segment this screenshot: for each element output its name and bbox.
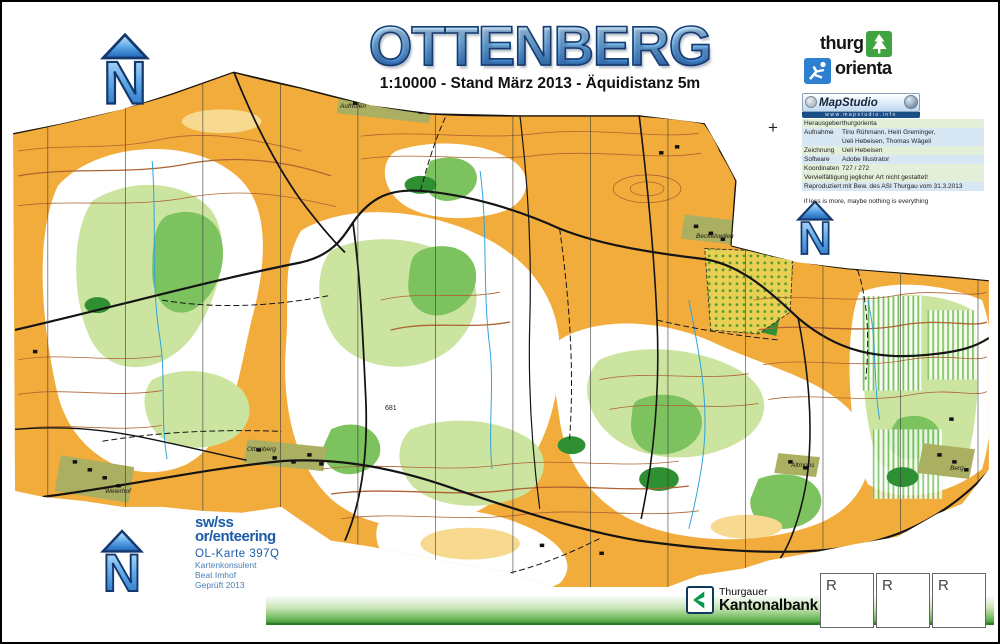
thurgorienta-word2: orienta	[835, 58, 892, 79]
north-letter: N	[103, 48, 147, 106]
imprint-row-label	[804, 137, 842, 146]
imprint-row-label: Aufnahme	[804, 128, 842, 137]
page-subtitle: 1:10000 - Stand März 2013 - Äquidistanz …	[320, 75, 760, 93]
mapstudio-logo: MapStudio www.mapstudio.info	[802, 93, 920, 118]
imprint-note: Reproduziert mit Bew. des ASI Thurgau vo…	[802, 182, 984, 191]
globe-icon	[904, 95, 918, 109]
gear-icon	[805, 96, 817, 108]
imprint-row-value: Ueli Hebeisen	[842, 146, 982, 155]
north-arrow-icon: N	[794, 198, 836, 258]
imprint-row: Herausgeber thurgorienta	[802, 119, 984, 128]
thurgorienta-word1: thurg	[820, 33, 863, 54]
map-reference: OL-Karte 397Q	[195, 548, 279, 560]
imprint-note: Vervielfältigung jeglicher Art nicht ges…	[802, 173, 984, 182]
imprint-row: Ueli Hebeisen, Thomas Wägeli	[802, 137, 984, 146]
imprint-row-label: Zeichnung	[804, 146, 842, 155]
stamp-box: R	[876, 573, 930, 628]
stamp-letter: R	[938, 577, 949, 594]
swiss-orienteering-block: sw/ss or/enteering OL-Karte 397Q Kartenk…	[195, 516, 279, 590]
bank-chevron-icon	[686, 586, 714, 614]
imprint-notes: Vervielfältigung jeglicher Art nicht ges…	[802, 173, 984, 191]
stamp-letter: R	[882, 577, 893, 594]
consultant-name: Beat Imhof	[195, 570, 279, 580]
north-arrow-icon: N	[96, 32, 154, 106]
imprint-rows: Herausgeber thurgorienta Aufnahme Tino R…	[802, 119, 984, 173]
runner-icon	[804, 58, 831, 84]
imprint-row: Koordinaten 727 / 272	[802, 164, 984, 173]
fir-tree-icon	[866, 31, 892, 57]
stamp-box: R	[932, 573, 986, 628]
title-block: OTTENBERG 1:10000 - Stand März 2013 - Äq…	[320, 18, 760, 93]
imprint-row: Aufnahme Tino Rühmann, Heiri Greminger,	[802, 128, 984, 137]
registration-cross-icon: +	[768, 118, 778, 138]
imprint-row: Zeichnung Ueli Hebeisen	[802, 146, 984, 155]
north-arrow-icon: N	[98, 526, 146, 596]
mapstudio-url: www.mapstudio.info	[802, 112, 920, 118]
mapstudio-name: MapStudio	[819, 97, 878, 109]
imprint-table: Herausgeber thurgorienta Aufnahme Tino R…	[802, 119, 984, 206]
page-title: OTTENBERG	[320, 18, 760, 74]
stamp-box: R	[820, 573, 874, 628]
imprint-row-label: Koordinaten	[804, 164, 842, 173]
stamp-letter: R	[826, 577, 837, 594]
consultant-label: Kartenkonsulent	[195, 560, 279, 570]
imprint-row-label: Herausgeber	[804, 119, 842, 128]
stamp-boxes: R R R	[820, 573, 988, 628]
north-letter: N	[103, 544, 141, 596]
bank-name-line2: Kantonalbank	[719, 598, 818, 613]
checked-year: Geprüft 2013	[195, 580, 279, 590]
mapstudio-bar: MapStudio	[802, 93, 920, 112]
imprint-row-value: Tino Rühmann, Heiri Greminger,	[842, 128, 982, 137]
spot-height-label: 681	[385, 405, 397, 412]
swiss-orienteering-line2: or/enteering	[195, 529, 279, 544]
map-sheet: AufhofenBeckelswilenOttenbergWeierhofAlt…	[0, 0, 1000, 644]
imprint-row-value: Ueli Hebeisen, Thomas Wägeli	[842, 137, 982, 146]
north-letter: N	[798, 212, 831, 258]
thurgorienta-logo: thurg orienta	[802, 29, 912, 89]
imprint-motto: if less is more, maybe nothing is everyt…	[802, 198, 984, 206]
imprint-row-value: Adobe Illustrator	[842, 155, 982, 164]
imprint-row-label: Software	[804, 155, 842, 164]
imprint-row: Software Adobe Illustrator	[802, 155, 984, 164]
imprint-row-value: thurgorienta	[842, 119, 982, 128]
imprint-row-value: 727 / 272	[842, 164, 982, 173]
kantonalbank-logo: Thurgauer Kantonalbank	[686, 583, 826, 617]
